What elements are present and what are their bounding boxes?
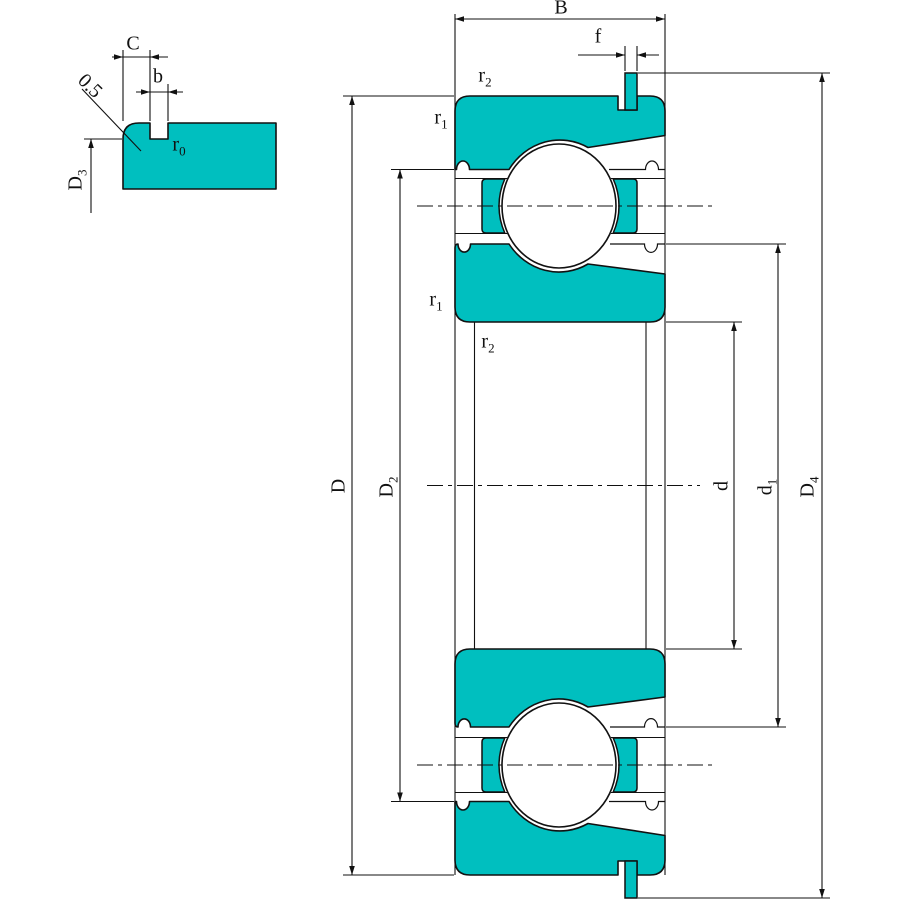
drawing-canvas bbox=[0, 0, 900, 900]
dim-label-r1-top: r1 bbox=[434, 108, 447, 131]
dim-label-r2-top: r2 bbox=[478, 66, 491, 89]
dim-label-d: d bbox=[712, 481, 735, 491]
dim-label-r2-bottom: r2 bbox=[481, 332, 494, 355]
dim-label-D2: D2 bbox=[377, 477, 400, 498]
dim-label-d1: d1 bbox=[756, 479, 779, 496]
dim-label-r1-bottom: r1 bbox=[429, 290, 442, 313]
dim-label-B: B bbox=[554, 0, 567, 21]
detail-ring-section bbox=[123, 123, 276, 189]
dim-label-f: f bbox=[595, 27, 602, 50]
dim-label-b: b bbox=[153, 67, 163, 90]
dim-label-D3: D3 bbox=[66, 170, 89, 191]
dim-label-D: D bbox=[329, 479, 352, 493]
snap-ring-groove-detail-view bbox=[82, 50, 276, 213]
dim-label-r0: r0 bbox=[172, 135, 185, 158]
dim-label-D4: D4 bbox=[798, 477, 821, 498]
bearing-drawing: C b 0.5 r0 D3 B f r2 r1 r1 r2 D D2 d d1 … bbox=[0, 0, 900, 900]
dim-label-C: C bbox=[126, 34, 139, 57]
